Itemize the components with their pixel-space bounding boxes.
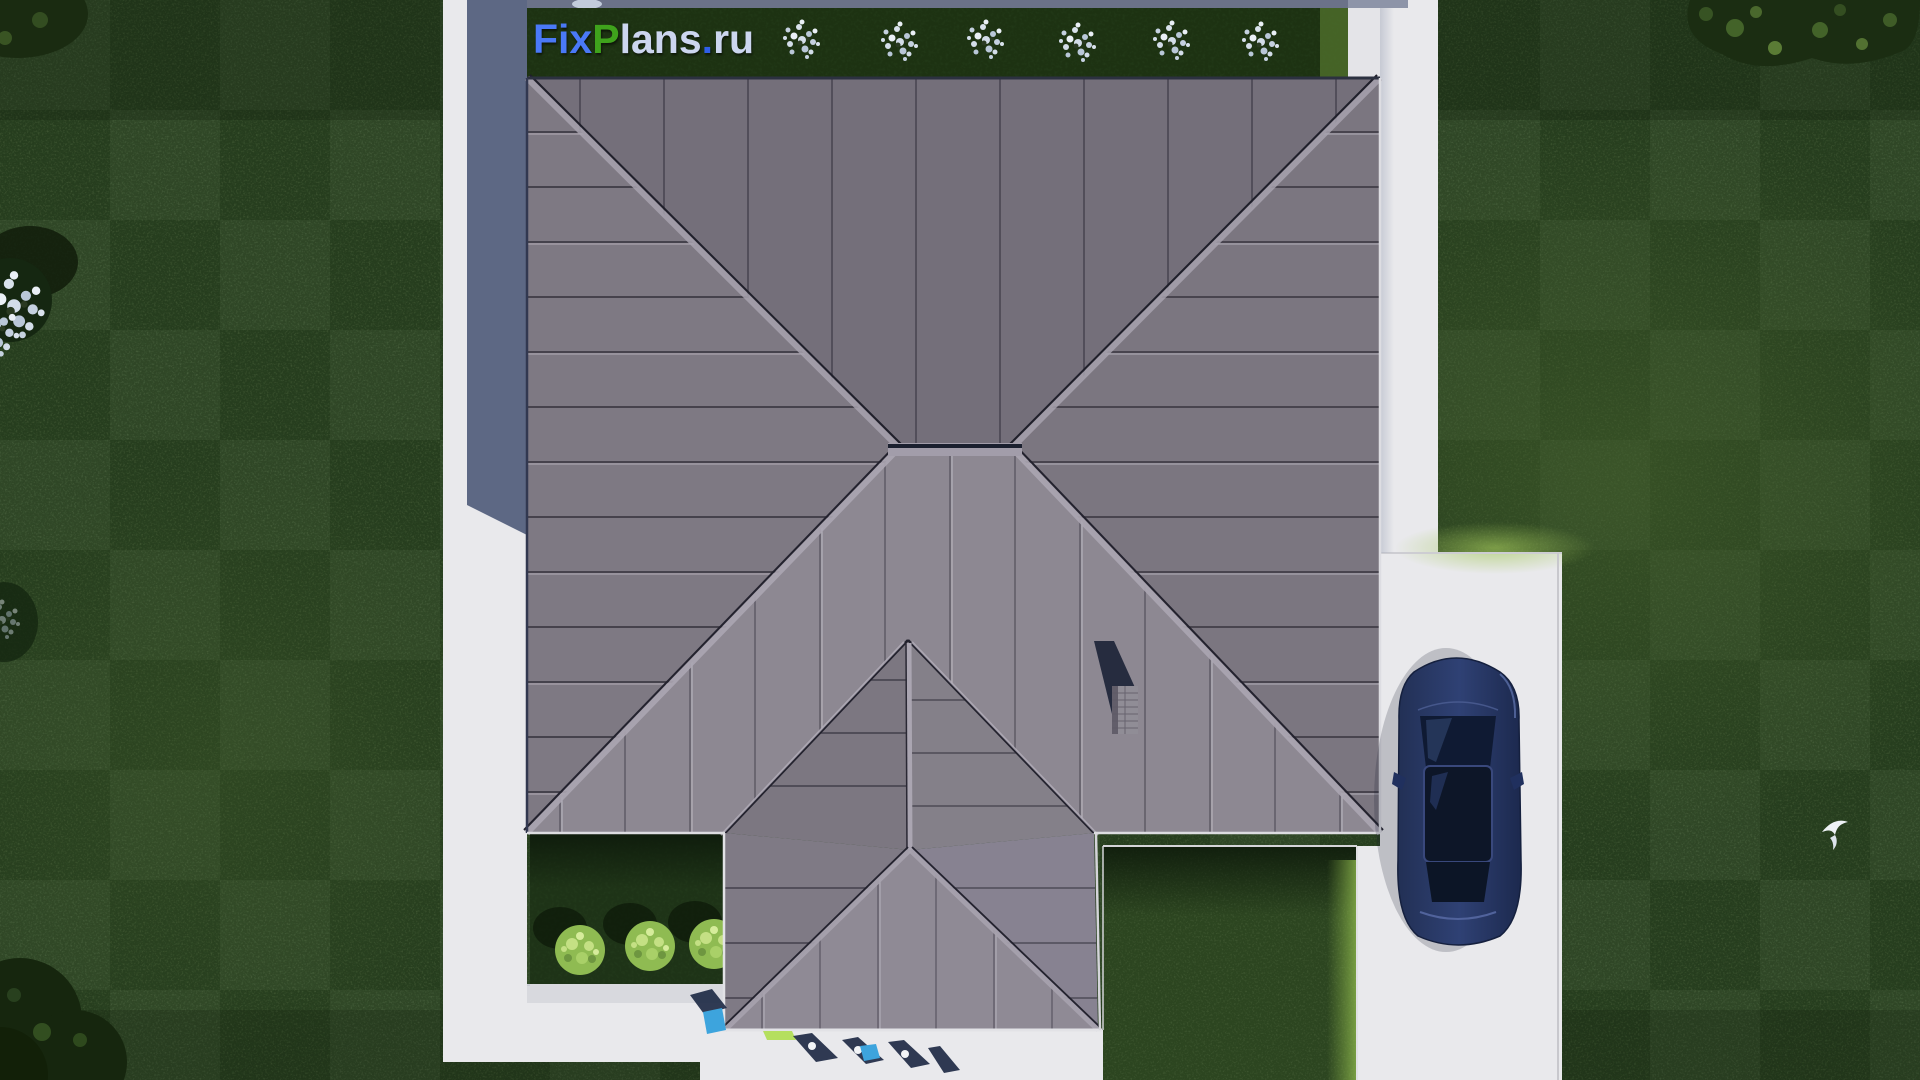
render-canvas [0, 0, 1920, 1080]
east-lawn-patch [1103, 846, 1357, 1080]
watermark-text-lans: lans [620, 16, 702, 63]
car-rear-window [1426, 862, 1490, 902]
garden-bush [625, 921, 675, 971]
watermark-text-ru: ru [713, 16, 754, 63]
house-shadow-west [467, 0, 527, 535]
roof-ridge [888, 443, 1022, 456]
garden-bush [555, 925, 605, 975]
house-shadow-north [527, 0, 1348, 8]
garden-bed [530, 833, 739, 985]
porch-roof [721, 833, 1102, 1030]
watermark-text-fix: Fix [533, 16, 592, 63]
fixplans-watermark: FixPlans.ru [533, 16, 754, 63]
aerial-house-render: FixPlans.ru [0, 0, 1920, 1080]
door-mat [763, 1031, 796, 1040]
blue-planter [703, 1008, 726, 1034]
car [1374, 648, 1524, 952]
watermark-text-dot: . [702, 16, 713, 63]
watermark-text-p: P [592, 16, 619, 63]
sunlit-grass-glow [1395, 522, 1595, 574]
